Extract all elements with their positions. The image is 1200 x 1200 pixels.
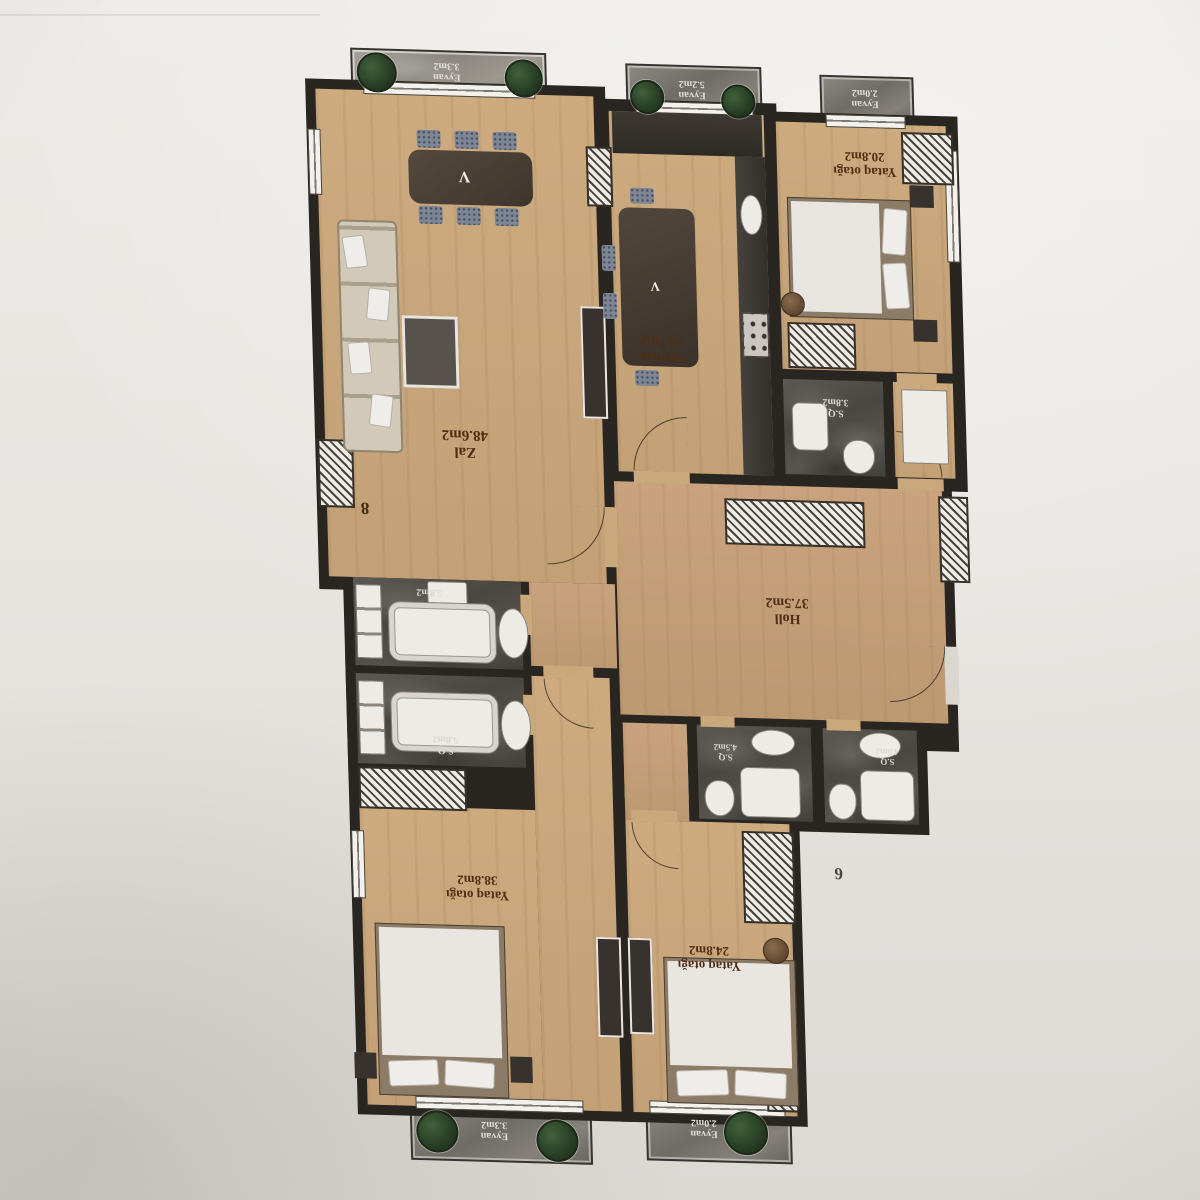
column-zal-kitchen xyxy=(586,146,614,207)
balcony-label: Eyvan 2.0m2 xyxy=(851,86,879,109)
room-label-zal: Zal 48.6m2 xyxy=(441,426,488,461)
balcony-label: Eyvan 3.3m2 xyxy=(480,1118,508,1141)
nightstand xyxy=(913,319,938,342)
room-area: 4.6m2 xyxy=(875,746,899,757)
window-bedroom1-top xyxy=(825,114,905,129)
dining-table: V xyxy=(408,149,533,207)
window-zal-left xyxy=(307,128,322,194)
tv-unit-bedroom2 xyxy=(596,937,624,1038)
rug xyxy=(402,315,460,389)
wardrobe-bedroom1 xyxy=(787,322,856,370)
balcony-area: 3.3m2 xyxy=(433,60,461,72)
floor-bedroom-38-a xyxy=(532,676,622,1112)
balcony-label: Eyvan 2.0m2 xyxy=(690,1116,718,1139)
room-label-sq-38: S.Q 3.8m2 xyxy=(822,396,848,419)
tv-unit-bedroom3 xyxy=(628,938,655,1035)
room-name: Zal xyxy=(442,442,489,460)
sofa-pillow xyxy=(366,287,390,322)
room-area: 20.7m2 xyxy=(639,332,685,349)
room-name: S.Q xyxy=(433,744,459,756)
bed-pillow xyxy=(388,1059,440,1086)
balcony-area: 3.3m2 xyxy=(480,1118,508,1130)
room-name: Yataq otağı xyxy=(833,163,897,179)
room-area: 5.8m2 xyxy=(432,733,458,745)
sofa xyxy=(337,219,403,453)
door-gap-entrance xyxy=(944,646,960,704)
bed-pillow xyxy=(676,1069,730,1096)
shower-tray xyxy=(860,770,915,822)
sofa-pillow xyxy=(341,235,368,269)
room-name: Yataq otağı xyxy=(446,887,510,903)
column-bedroom1-corner xyxy=(901,132,954,186)
bed-pillow xyxy=(882,262,910,309)
sofa-pillow xyxy=(347,341,373,374)
tv-unit-zal xyxy=(580,306,608,419)
balcony-name: Eyvan xyxy=(481,1130,509,1142)
table-logo-icon: V xyxy=(458,167,470,185)
room-area: 48.6m2 xyxy=(441,426,488,444)
bed-pillow xyxy=(734,1069,787,1099)
floor-corridor xyxy=(529,582,617,668)
shelf-unit xyxy=(355,584,383,659)
unit-number-8: 8 xyxy=(360,499,369,518)
room-label-metbex: Mətbəx 20.7m2 xyxy=(639,332,685,365)
dining-chair xyxy=(454,131,478,150)
room-label-sq-45: S.Q 4.5m2 xyxy=(714,742,738,763)
balcony-area: 2.0m2 xyxy=(851,86,879,98)
bathtub xyxy=(388,601,498,664)
wardrobe-bedroom3 xyxy=(742,831,797,925)
room-label-bath-lower: S.Q 5.8m2 xyxy=(432,733,458,756)
balcony-label: Eyvan 3.3m2 xyxy=(433,60,461,83)
door-gap-kitchen-hall xyxy=(634,471,690,485)
balcony-name: Eyvan xyxy=(690,1128,718,1140)
balcony-name: Eyvan xyxy=(433,71,461,83)
dressing-cabinet xyxy=(901,389,949,464)
room-name: Holl xyxy=(766,609,810,626)
room-name: Yataq otağı xyxy=(678,957,742,973)
room-label-sq-46: S.Q 4.6m2 xyxy=(875,746,899,767)
room-area: 37.5m2 xyxy=(765,594,809,611)
room-name: S.Q xyxy=(714,752,738,763)
door-gap-zal-hall xyxy=(604,507,619,567)
door-gap-bedroom1-dressing xyxy=(897,373,937,385)
bed-pillow xyxy=(444,1059,495,1089)
shower-tray xyxy=(740,767,801,819)
nightstand xyxy=(510,1056,533,1083)
kitchen-chair xyxy=(601,245,616,271)
wardrobe-bedroom2 xyxy=(358,766,467,811)
room-label-holl: Holl 37.5m2 xyxy=(765,594,809,627)
room-label-yataq-38: Yataq otağı 38.8m2 xyxy=(445,872,509,903)
shelf-unit xyxy=(358,680,386,755)
window-bedroom2-left xyxy=(351,830,366,898)
door-gap-sq46 xyxy=(826,719,860,731)
kitchen-chair xyxy=(630,187,654,204)
floor-corridor-2 xyxy=(623,722,690,821)
bed-20 xyxy=(791,201,882,314)
nightstand xyxy=(354,1052,377,1079)
stove xyxy=(742,313,769,358)
bed-pillow xyxy=(882,208,908,256)
room-area: 4.5m2 xyxy=(714,742,738,753)
balcony-name: Eyvan xyxy=(678,89,706,101)
room-label-yataq-20: Yataq otağı 20.8m2 xyxy=(833,149,897,180)
room-name: S.Q xyxy=(876,757,900,768)
kitchen-chair xyxy=(635,370,659,387)
room-name: Mətbəx xyxy=(640,348,686,365)
dining-chair xyxy=(416,130,440,149)
room-label-bath-upper: 5.8m2 xyxy=(416,586,442,598)
room-area: 3.8m2 xyxy=(822,396,848,408)
dining-chair xyxy=(456,207,480,226)
floor-plan: V V xyxy=(292,40,993,1180)
room-area: 5.8m2 xyxy=(416,586,442,598)
unit-number-text: 6 xyxy=(834,864,843,883)
dining-chair xyxy=(492,132,516,151)
bed-24 xyxy=(667,961,792,1069)
sofa-pillow xyxy=(369,393,394,428)
room-label-yataq-24: Yataq otağı 24.8m2 xyxy=(677,943,741,974)
pouf xyxy=(780,292,805,317)
unit-number-6: 6 xyxy=(834,864,843,883)
kitchen-table-logo-icon: V xyxy=(650,278,660,294)
dining-chair xyxy=(494,208,518,227)
balcony-label: Eyvan 5.2m2 xyxy=(678,78,706,101)
bed-38 xyxy=(379,927,503,1059)
wardrobe-hall xyxy=(724,498,865,548)
balcony-area: 2.0m2 xyxy=(690,1116,718,1128)
dining-chair xyxy=(418,206,442,225)
column-hall-right xyxy=(938,496,970,583)
wall-seam xyxy=(0,14,320,16)
room-name: S.Q xyxy=(823,407,849,419)
balcony-name: Eyvan xyxy=(851,98,879,110)
unit-number-text: 8 xyxy=(360,499,369,518)
door-gap-dressing-hall xyxy=(898,478,944,491)
balcony-area: 5.2m2 xyxy=(678,78,706,90)
door-gap-sq45 xyxy=(700,716,734,728)
toilet xyxy=(828,783,857,820)
pouf xyxy=(763,937,790,964)
nightstand xyxy=(909,185,934,208)
kitchen-chair xyxy=(603,293,618,319)
toilet xyxy=(704,780,735,817)
